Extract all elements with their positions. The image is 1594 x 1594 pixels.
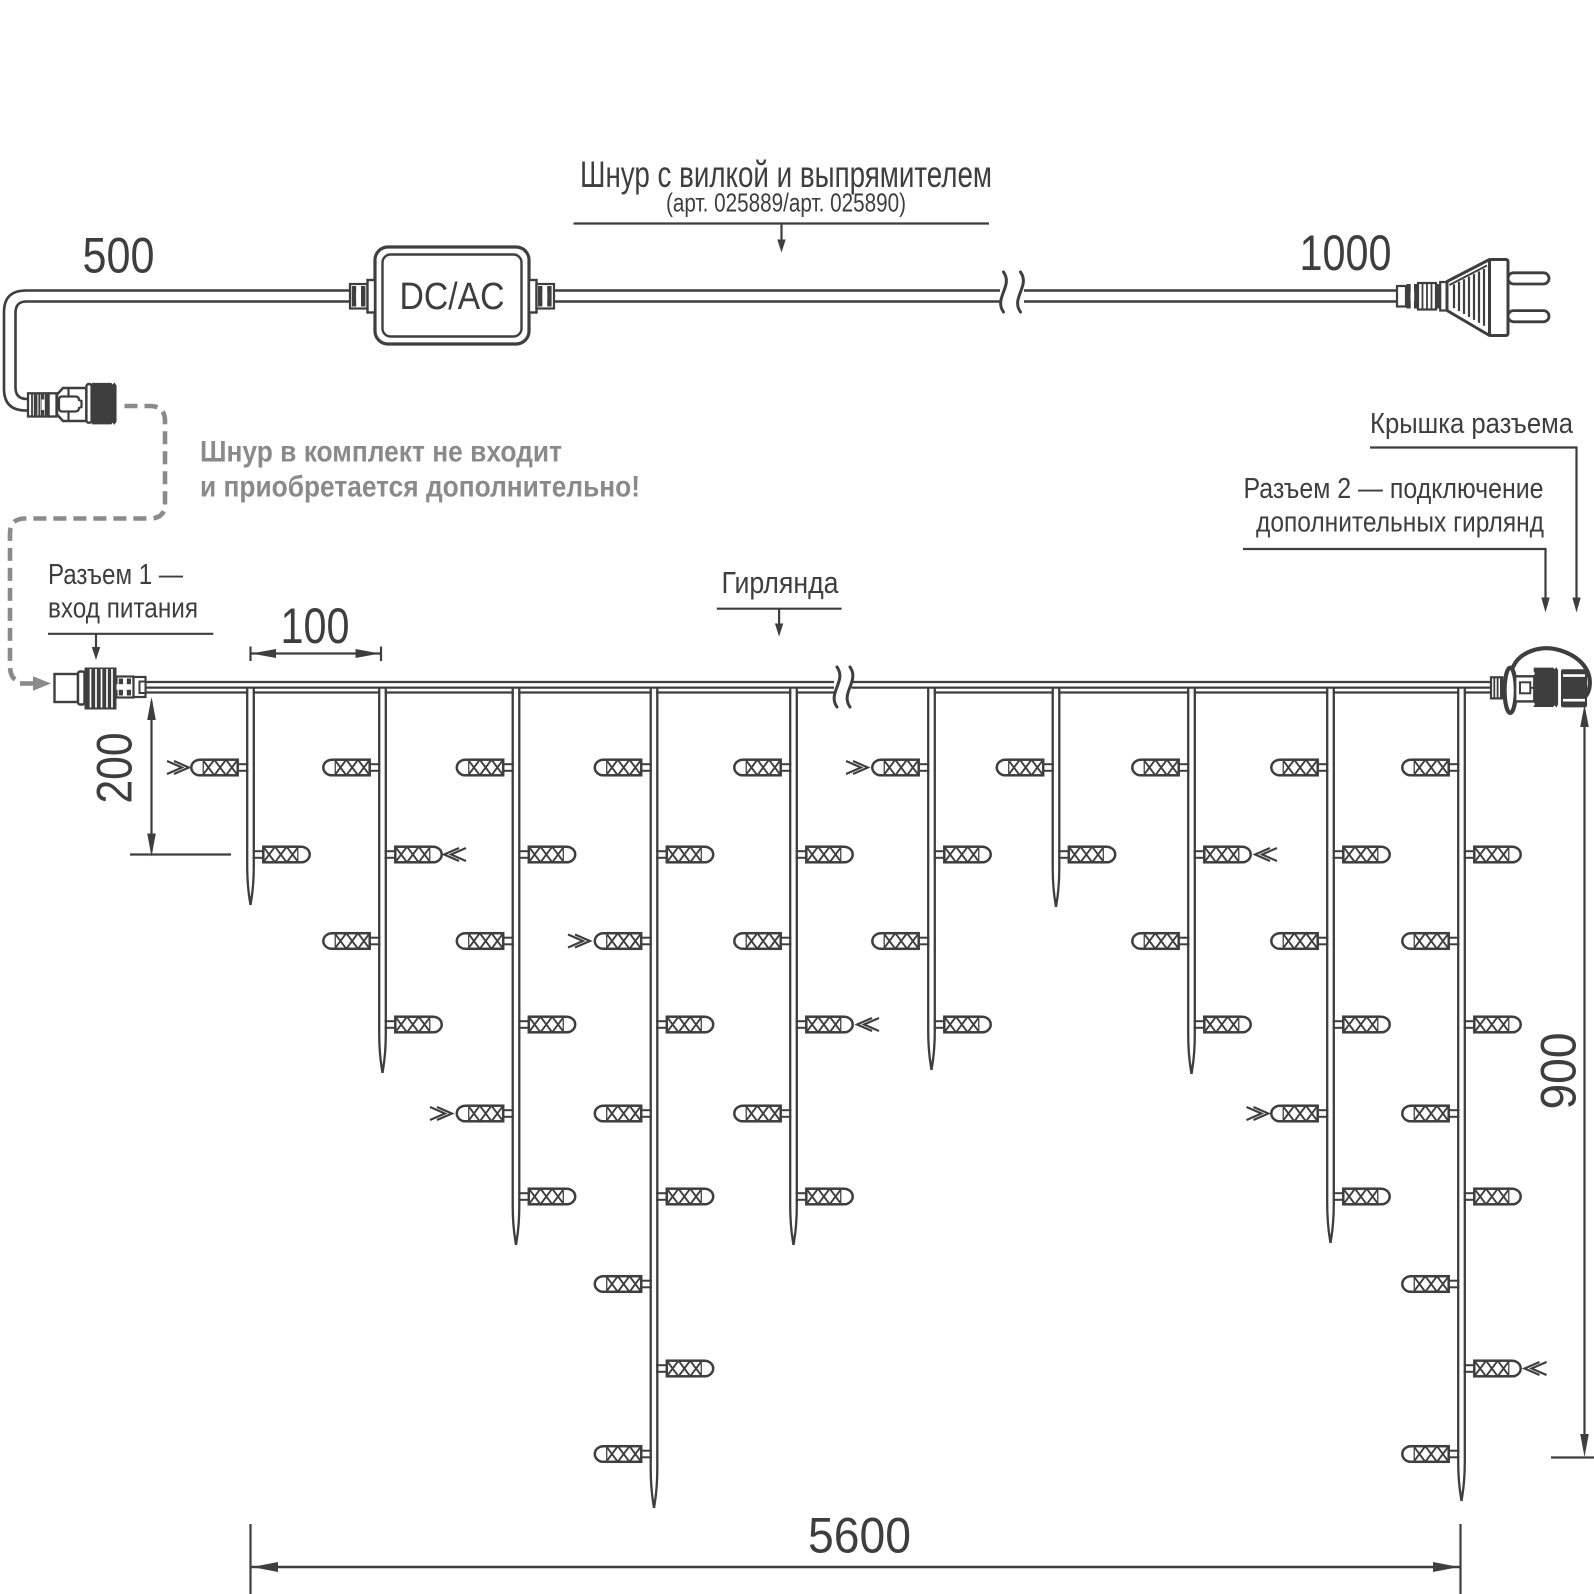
svg-text:500: 500 [83, 228, 155, 284]
svg-text:DC/AC: DC/AC [400, 276, 505, 318]
svg-text:900: 900 [1531, 1033, 1587, 1110]
svg-text:Разъем 1 —: Разъем 1 — [48, 559, 183, 591]
svg-text:дополнительных гирлянд: дополнительных гирлянд [1256, 507, 1544, 539]
svg-text:Крышка разъема: Крышка разъема [1370, 408, 1574, 440]
svg-text:1000: 1000 [1300, 225, 1392, 281]
svg-text:100: 100 [281, 598, 350, 654]
svg-text:Шнур в комплект не входит: Шнур в комплект не входит [200, 436, 562, 469]
svg-text:200: 200 [87, 733, 143, 804]
svg-text:и приобретается дополнительно!: и приобретается дополнительно! [200, 471, 640, 504]
svg-text:вход питания: вход питания [48, 593, 198, 625]
svg-text:(арт. 025889/арт. 025890): (арт. 025889/арт. 025890) [666, 188, 906, 218]
svg-text:Гирлянда: Гирлянда [722, 565, 840, 600]
svg-text:Разъем 2 — подключение: Разъем 2 — подключение [1244, 473, 1544, 505]
svg-text:5600: 5600 [808, 1508, 911, 1564]
